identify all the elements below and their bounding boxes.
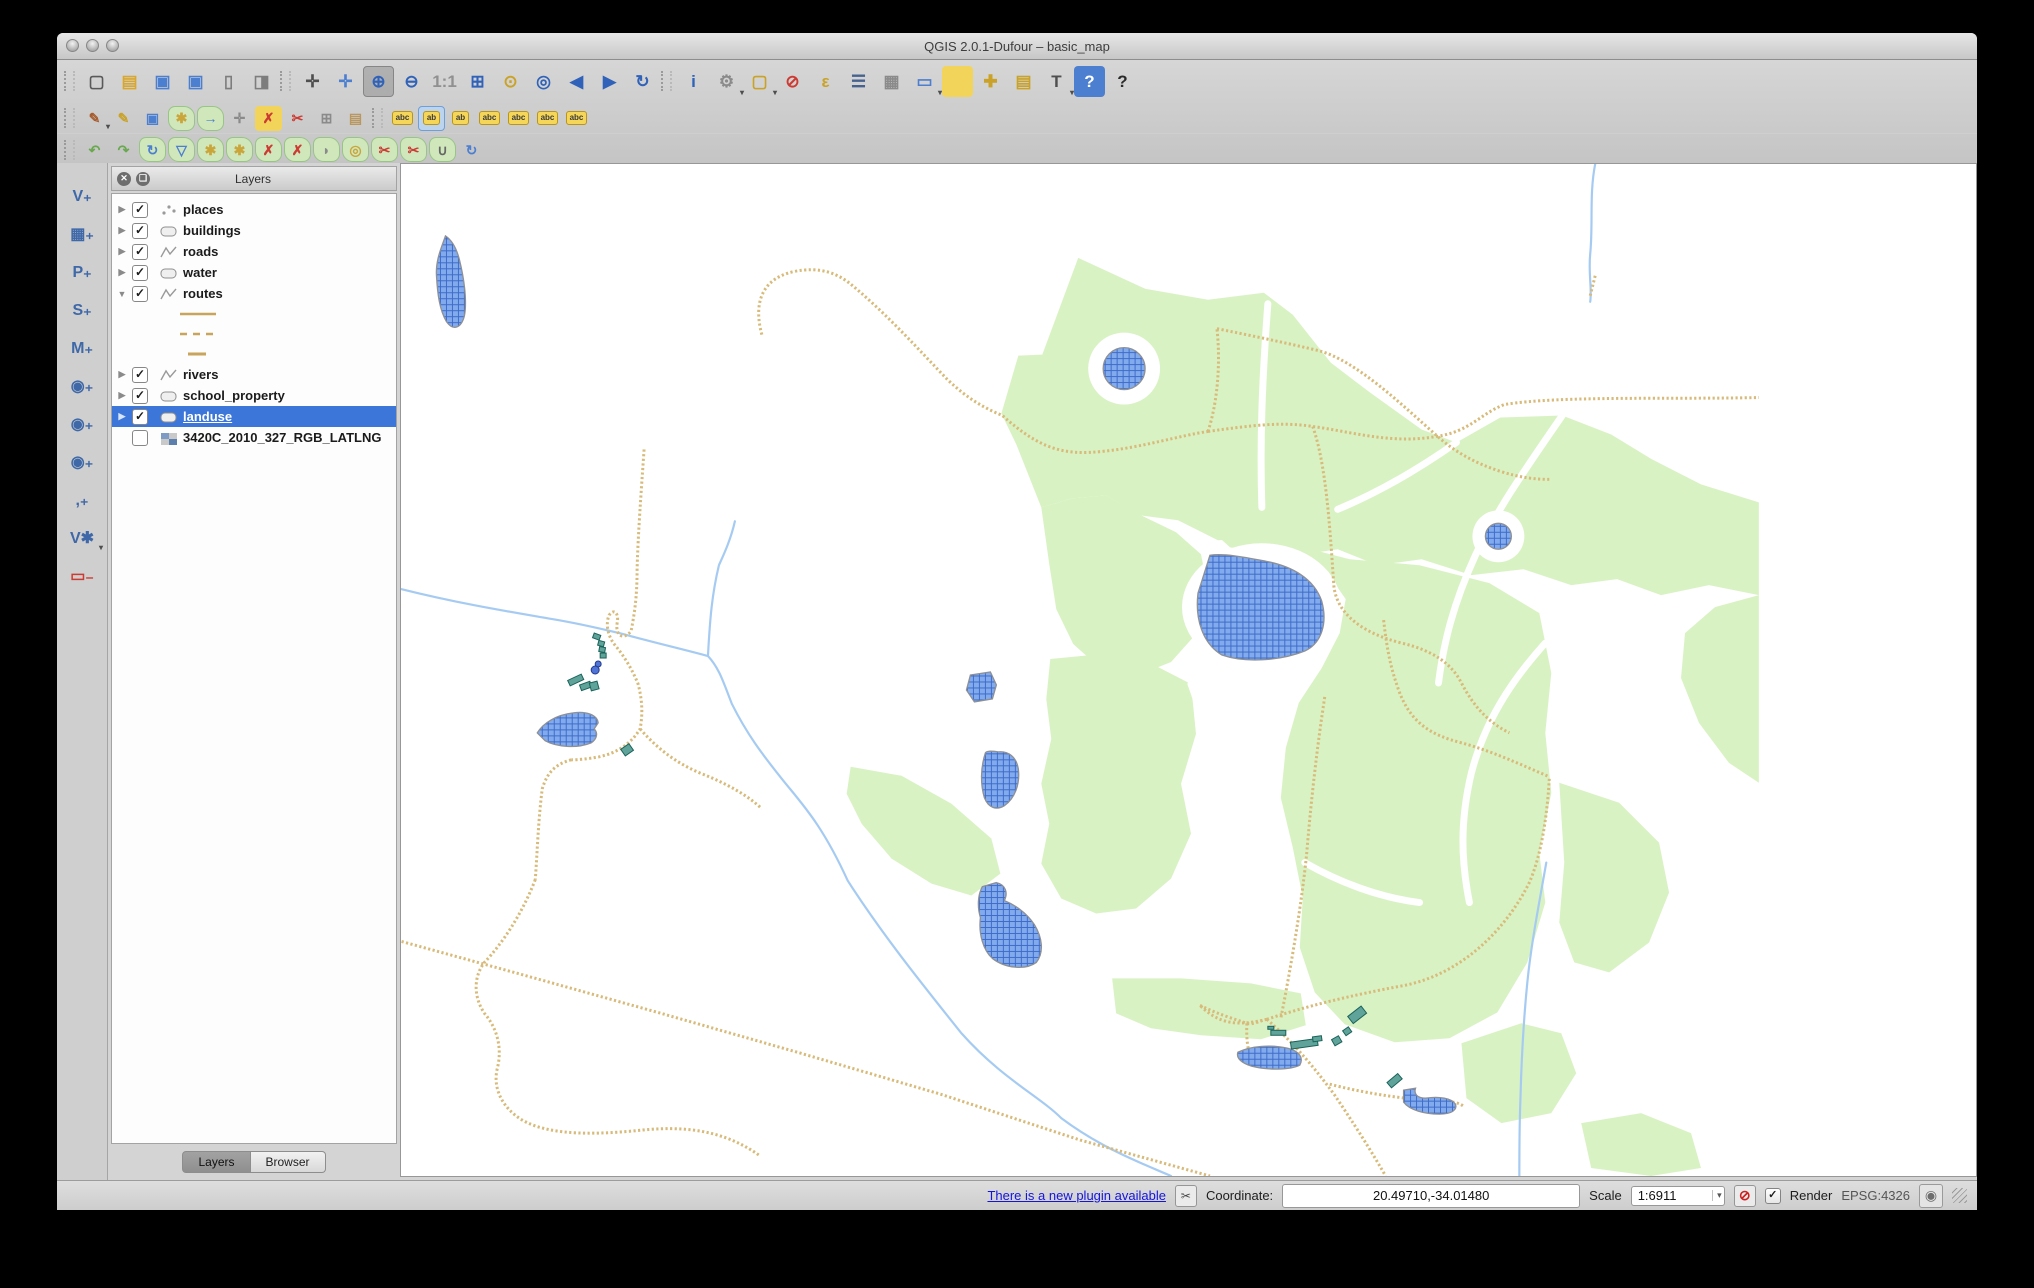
layer-checkbox[interactable]: ✓ [132,367,148,383]
label-move-icon: abc [508,111,530,125]
desktop: { "window": { "title": "QGIS 2.0.1-Dufou… [0,0,2034,1288]
toolbar-row-digitizing: ✎✎▣✱→✛✗✂⊞▤abcabababcabcabcabc [57,102,1977,133]
add-feature-icon: ✱ [176,111,188,125]
split-parts-button[interactable]: ✂ [400,137,427,162]
add-wms-layer-button[interactable]: ◉₊ [64,370,100,401]
field-calculator-button[interactable]: ▦ [876,66,907,97]
layer-type-line-icon [159,287,179,301]
zoom-next-button[interactable]: ▶ [594,66,625,97]
delete-selected-button[interactable]: ✗ [255,106,282,131]
stop-render-icon[interactable]: ⊘ [1734,1185,1756,1207]
save-layer-edits-icon: ▣ [146,111,159,125]
layers-panel-title: Layers [150,172,396,186]
layers-panel: ✕ ❏ Layers ▶✓places▶✓buildings▶✓roads▶✓w… [108,163,400,1180]
window-controls [66,39,119,52]
layer-item-roads[interactable]: ▶✓roads [112,241,396,262]
crs-status-label: EPSG:4326 [1841,1188,1910,1203]
help-icon: ? [1084,73,1094,90]
add-ring-button[interactable]: ✱ [197,137,224,162]
zoom-next-icon: ▶ [603,73,616,90]
window-zoom-button[interactable] [106,39,119,52]
layer-label: roads [183,244,218,259]
toolbar-separator [372,108,383,128]
add-delimited-text-layer-icon: ,₊ [76,490,89,510]
zoom-in-button[interactable]: ⊕ [363,66,394,97]
zoom-full-icon: ⊞ [470,73,484,90]
layer-item-places[interactable]: ▶✓places [112,199,396,220]
add-spatialite-layer-icon: S₊ [72,300,91,320]
paste-features-icon: ▤ [349,111,362,125]
layer-label: buildings [183,223,241,238]
label-move-button[interactable]: abc [505,106,532,131]
delete-part-icon: ✗ [292,143,304,157]
open-project-icon: ▤ [121,73,137,90]
cut-features-icon: ✂ [292,111,304,125]
identify-features-icon: i [691,73,696,90]
add-part-button[interactable]: ✱ [226,137,253,162]
layer-checkbox[interactable]: ✓ [132,388,148,404]
simplify-feature-icon: ▽ [176,143,187,157]
toolbar-handle [64,108,75,128]
measure-button[interactable]: ▭ [909,66,940,97]
layer-type-line-icon [159,368,179,382]
scale-label: Scale [1589,1188,1622,1203]
layer-label: rivers [183,367,218,382]
render-label: Render [1790,1188,1833,1203]
route-symbol-solid [176,309,220,319]
chevron-right-icon[interactable]: ▶ [112,225,132,236]
layer-label: water [183,265,217,280]
measure-icon: ▭ [916,73,932,90]
zoom-last-icon: ◀ [570,73,583,90]
layer-checkbox[interactable]: ✓ [132,202,148,218]
layer-type-polygon-icon [159,389,179,403]
zoom-out-icon: ⊖ [404,73,418,90]
label-properties-icon: abc [566,111,588,125]
text-annotation-button[interactable]: T [1041,66,1072,97]
label-properties-button[interactable]: abc [563,106,590,131]
run-feature-action-button[interactable]: ⚙ [711,66,742,97]
layer-label: 3420C_2010_327_RGB_LATLNG [183,430,381,445]
pan-to-selection-button[interactable]: ✛ [330,66,361,97]
window-title: QGIS 2.0.1-Dufour – basic_map [57,39,1977,54]
window-minimize-button[interactable] [86,39,99,52]
pan-map-icon: ✛ [305,73,319,90]
identify-features-button[interactable]: i [678,66,709,97]
save-layer-edits-button[interactable]: ▣ [139,106,166,131]
chevron-right-icon[interactable]: ▶ [112,267,132,278]
layer-type-line-icon [159,245,179,259]
show-bookmarks-icon: ▤ [1015,73,1031,90]
toggle-editing-icon: ✎ [118,111,130,125]
label-unpin-button[interactable]: ab [447,106,474,131]
cut-features-button[interactable]: ✂ [284,106,311,131]
layer-label: school_property [183,388,285,403]
layer-tree: ▶✓places▶✓buildings▶✓roads▶✓water▼✓route… [111,193,397,1144]
layer-label: landuse [183,409,232,424]
scale-combo[interactable]: 1:6911 [1631,1186,1725,1206]
new-shapefile-layer-icon: V✱ [70,528,94,548]
rotate-feature-button[interactable]: ↻ [139,137,166,162]
window-close-button[interactable] [66,39,79,52]
layer-type-raster-icon [159,431,179,445]
layer-item-landuse[interactable]: ▶✓landuse [112,406,396,427]
save-project-as-button[interactable]: ▣ [180,66,211,97]
toolbar-row-main: ▢▤▣▣▯◨✛✛⊕⊖1:1⊞⊙◎◀▶↻i⚙▢⊘ε☰▦▭✚▤T?? [57,60,1977,102]
move-feature-button[interactable]: → [197,106,224,131]
zoom-in-icon: ⊕ [371,73,385,90]
new-print-composer-button[interactable]: ▯ [213,66,244,97]
new-bookmark-icon: ✚ [983,73,997,90]
tab-layers[interactable]: Layers [182,1151,250,1173]
layer-type-point-icon [159,203,179,217]
map-canvas[interactable] [400,163,1977,1177]
map-tips-button[interactable] [942,66,973,97]
label-pin-button[interactable]: ab [418,106,445,131]
plugin-available-link[interactable]: There is a new plugin available [987,1188,1166,1203]
layer-checkbox[interactable]: ✓ [132,409,148,425]
refresh-map-icon: ↻ [635,73,649,90]
manage-layers-toolbar: V₊▦₊P₊S₊M₊◉₊◉₊◉₊,₊V✱▭₋ [57,163,108,1180]
new-project-icon: ▢ [88,73,104,90]
deselect-features-icon: ⊘ [785,73,799,90]
zoom-to-layer-button[interactable]: ◎ [528,66,559,97]
field-calculator-icon: ▦ [883,73,899,90]
current-edits-button[interactable]: ✎ [81,106,108,131]
render-checkbox[interactable]: ✓ [1765,1188,1781,1204]
save-project-button[interactable]: ▣ [147,66,178,97]
resize-grip[interactable] [1952,1188,1967,1203]
route-symbol-short [176,349,220,359]
new-print-composer-icon: ▯ [224,73,233,90]
show-bookmarks-button[interactable]: ▤ [1008,66,1039,97]
composer-manager-button[interactable]: ◨ [246,66,277,97]
layer-item-routes[interactable]: ▼✓routes [112,283,396,304]
deselect-features-button[interactable]: ⊘ [777,66,808,97]
select-features-button[interactable]: ▢ [744,66,775,97]
whats-this-button[interactable]: ? [1107,66,1138,97]
redo-button[interactable]: ↷ [110,137,137,162]
open-project-button[interactable]: ▤ [114,66,145,97]
rotate-feature-icon: ↻ [147,143,159,157]
layer-checkbox[interactable]: ✓ [132,244,148,260]
label-pin-icon: ab [423,111,440,125]
redo-icon: ↷ [118,143,130,157]
delete-selected-icon: ✗ [263,111,275,125]
add-postgis-layer-button[interactable]: P₊ [64,256,100,287]
scale-value: 1:6911 [1638,1188,1677,1203]
layer-label: places [183,202,223,217]
rotate-point-symbols-button[interactable]: ↻ [458,137,485,162]
copy-features-button[interactable]: ⊞ [313,106,340,131]
open-attribute-table-button[interactable]: ☰ [843,66,874,97]
add-feature-button[interactable]: ✱ [168,106,195,131]
panel-float-icon[interactable]: ❏ [136,172,150,186]
copy-features-icon: ⊞ [321,111,333,125]
add-mssql-layer-icon: M₊ [71,338,93,358]
simplify-feature-button[interactable]: ▽ [168,137,195,162]
labeling-button[interactable]: abc [389,106,416,131]
zoom-to-layer-icon: ◎ [536,73,551,90]
label-visibility-icon: abc [479,111,501,125]
delete-part-button[interactable]: ✗ [284,137,311,162]
toolbar-area: ▢▤▣▣▯◨✛✛⊕⊖1:1⊞⊙◎◀▶↻i⚙▢⊘ε☰▦▭✚▤T?? ✎✎▣✱→✛✗… [57,60,1977,166]
legend-symbol-row [112,304,396,324]
offset-curve-icon: ◎ [349,143,361,157]
label-unpin-icon: ab [452,111,469,125]
layer-checkbox[interactable] [132,430,148,446]
select-features-icon: ▢ [751,73,767,90]
coordinate-label: Coordinate: [1206,1188,1273,1203]
layer-type-polygon-icon [159,266,179,280]
title-bar[interactable]: QGIS 2.0.1-Dufour – basic_map [57,33,1977,60]
open-attribute-table-icon: ☰ [851,73,866,90]
zoom-full-button[interactable]: ⊞ [462,66,493,97]
save-project-icon: ▣ [154,73,170,90]
node-tool-icon: ✛ [234,111,246,125]
add-ring-icon: ✱ [205,143,217,157]
label-visibility-button[interactable]: abc [476,106,503,131]
split-features-button[interactable]: ✂ [371,137,398,162]
delete-ring-button[interactable]: ✗ [255,137,282,162]
add-vector-layer-icon: V₊ [72,186,91,206]
help-button[interactable]: ? [1074,66,1105,97]
legend-symbol-row [112,324,396,344]
toolbar-handle [64,140,75,160]
route-symbol-dashed [176,329,220,339]
add-wcs-layer-button[interactable]: ◉₊ [64,408,100,439]
zoom-last-button[interactable]: ◀ [561,66,592,97]
layer-checkbox[interactable]: ✓ [132,223,148,239]
paste-features-button[interactable]: ▤ [342,106,369,131]
add-spatialite-layer-button[interactable]: S₊ [64,294,100,325]
chevron-right-icon[interactable]: ▶ [112,411,132,422]
remove-layer-button[interactable]: ▭₋ [64,560,100,591]
current-edits-icon: ✎ [89,111,101,125]
undo-button[interactable]: ↶ [81,137,108,162]
toolbar-row-advanced-digitizing: ↶↷↻▽✱✱✗✗◗◎✂✂∪↻ [57,133,1977,165]
whats-this-icon: ? [1117,73,1127,90]
water-point-features [591,661,601,674]
panel-close-icon[interactable]: ✕ [117,172,131,186]
status-bar: There is a new plugin available ✂ Coordi… [57,1180,1977,1210]
layer-checkbox[interactable]: ✓ [132,265,148,281]
layer-type-polygon-icon [159,410,179,424]
new-shapefile-layer-button[interactable]: V✱ [64,522,100,553]
rotate-point-symbols-icon: ↻ [466,143,478,157]
save-project-as-icon: ▣ [187,73,203,90]
add-wms-layer-icon: ◉₊ [71,376,93,396]
chevron-down-icon[interactable]: ▼ [112,289,132,299]
split-features-icon: ✂ [379,143,391,157]
chevron-right-icon[interactable]: ▶ [112,390,132,401]
legend-symbol-row [112,344,396,364]
coordinate-input[interactable] [1282,1184,1580,1208]
layer-label: routes [183,286,223,301]
node-tool-button[interactable]: ✛ [226,106,253,131]
layer-type-polygon-icon [159,224,179,238]
toolbar-separator [280,71,291,91]
toolbar-separator [661,71,672,91]
pan-map-button[interactable]: ✛ [297,66,328,97]
remove-layer-icon: ▭₋ [70,566,94,586]
reshape-features-button[interactable]: ◗ [313,137,340,162]
layer-item-rivers[interactable]: ▶✓rivers [112,364,396,385]
add-raster-layer-icon: ▦₊ [70,224,94,244]
merge-features-icon: ∪ [437,143,447,157]
select-by-expression-button[interactable]: ε [810,66,841,97]
add-wfs-layer-icon: ◉₊ [71,452,93,472]
panel-tabs: LayersBrowser [108,1151,400,1173]
zoom-to-selection-icon: ⊙ [503,73,517,90]
layer-checkbox[interactable]: ✓ [132,286,148,302]
chevron-right-icon[interactable]: ▶ [112,246,132,257]
text-annotation-icon: T [1051,73,1061,90]
reshape-features-icon: ◗ [322,143,330,157]
new-bookmark-button[interactable]: ✚ [975,66,1006,97]
toggle-editing-button[interactable]: ✎ [110,106,137,131]
layer-item-3420C_2010_327_RGB_LATLNG[interactable]: 3420C_2010_327_RGB_LATLNG [112,427,396,448]
layers-panel-header: ✕ ❏ Layers [111,166,397,191]
plugin-icon[interactable]: ✂ [1175,1185,1197,1207]
map-svg [401,164,1976,1176]
add-part-icon: ✱ [234,143,246,157]
add-delimited-text-layer-button[interactable]: ,₊ [64,484,100,515]
tab-browser[interactable]: Browser [251,1151,326,1173]
move-feature-icon: → [204,111,218,125]
merge-features-button[interactable]: ∪ [429,137,456,162]
crs-status-icon[interactable]: ◉ [1919,1184,1943,1208]
landuse-polygons [847,258,1759,1176]
zoom-native-button[interactable]: 1:1 [429,66,460,97]
zoom-out-button[interactable]: ⊖ [396,66,427,97]
add-mssql-layer-button[interactable]: M₊ [64,332,100,363]
split-parts-icon: ✂ [408,143,420,157]
zoom-native-icon: 1:1 [432,73,457,90]
refresh-map-button[interactable]: ↻ [627,66,658,97]
label-rotate-icon: abc [537,111,559,125]
add-vector-layer-button[interactable]: V₊ [64,180,100,211]
select-by-expression-icon: ε [821,73,829,90]
layer-item-water[interactable]: ▶✓water [112,262,396,283]
pan-to-selection-icon: ✛ [338,73,352,90]
new-project-button[interactable]: ▢ [81,66,112,97]
add-wcs-layer-icon: ◉₊ [71,414,93,434]
chevron-right-icon[interactable]: ▶ [112,369,132,380]
zoom-to-selection-button[interactable]: ⊙ [495,66,526,97]
layer-item-buildings[interactable]: ▶✓buildings [112,220,396,241]
undo-icon: ↶ [89,143,101,157]
chevron-right-icon[interactable]: ▶ [112,204,132,215]
offset-curve-button[interactable]: ◎ [342,137,369,162]
qgis-window: QGIS 2.0.1-Dufour – basic_map ▢▤▣▣▯◨✛✛⊕⊖… [57,33,1977,1210]
label-rotate-button[interactable]: abc [534,106,561,131]
add-wfs-layer-button[interactable]: ◉₊ [64,446,100,477]
add-raster-layer-button[interactable]: ▦₊ [64,218,100,249]
layer-item-school_property[interactable]: ▶✓school_property [112,385,396,406]
delete-ring-icon: ✗ [263,143,275,157]
labeling-icon: abc [392,111,414,125]
composer-manager-icon: ◨ [253,73,269,90]
add-postgis-layer-icon: P₊ [72,262,91,282]
run-feature-action-icon: ⚙ [719,73,734,90]
toolbar-handle [64,71,75,91]
